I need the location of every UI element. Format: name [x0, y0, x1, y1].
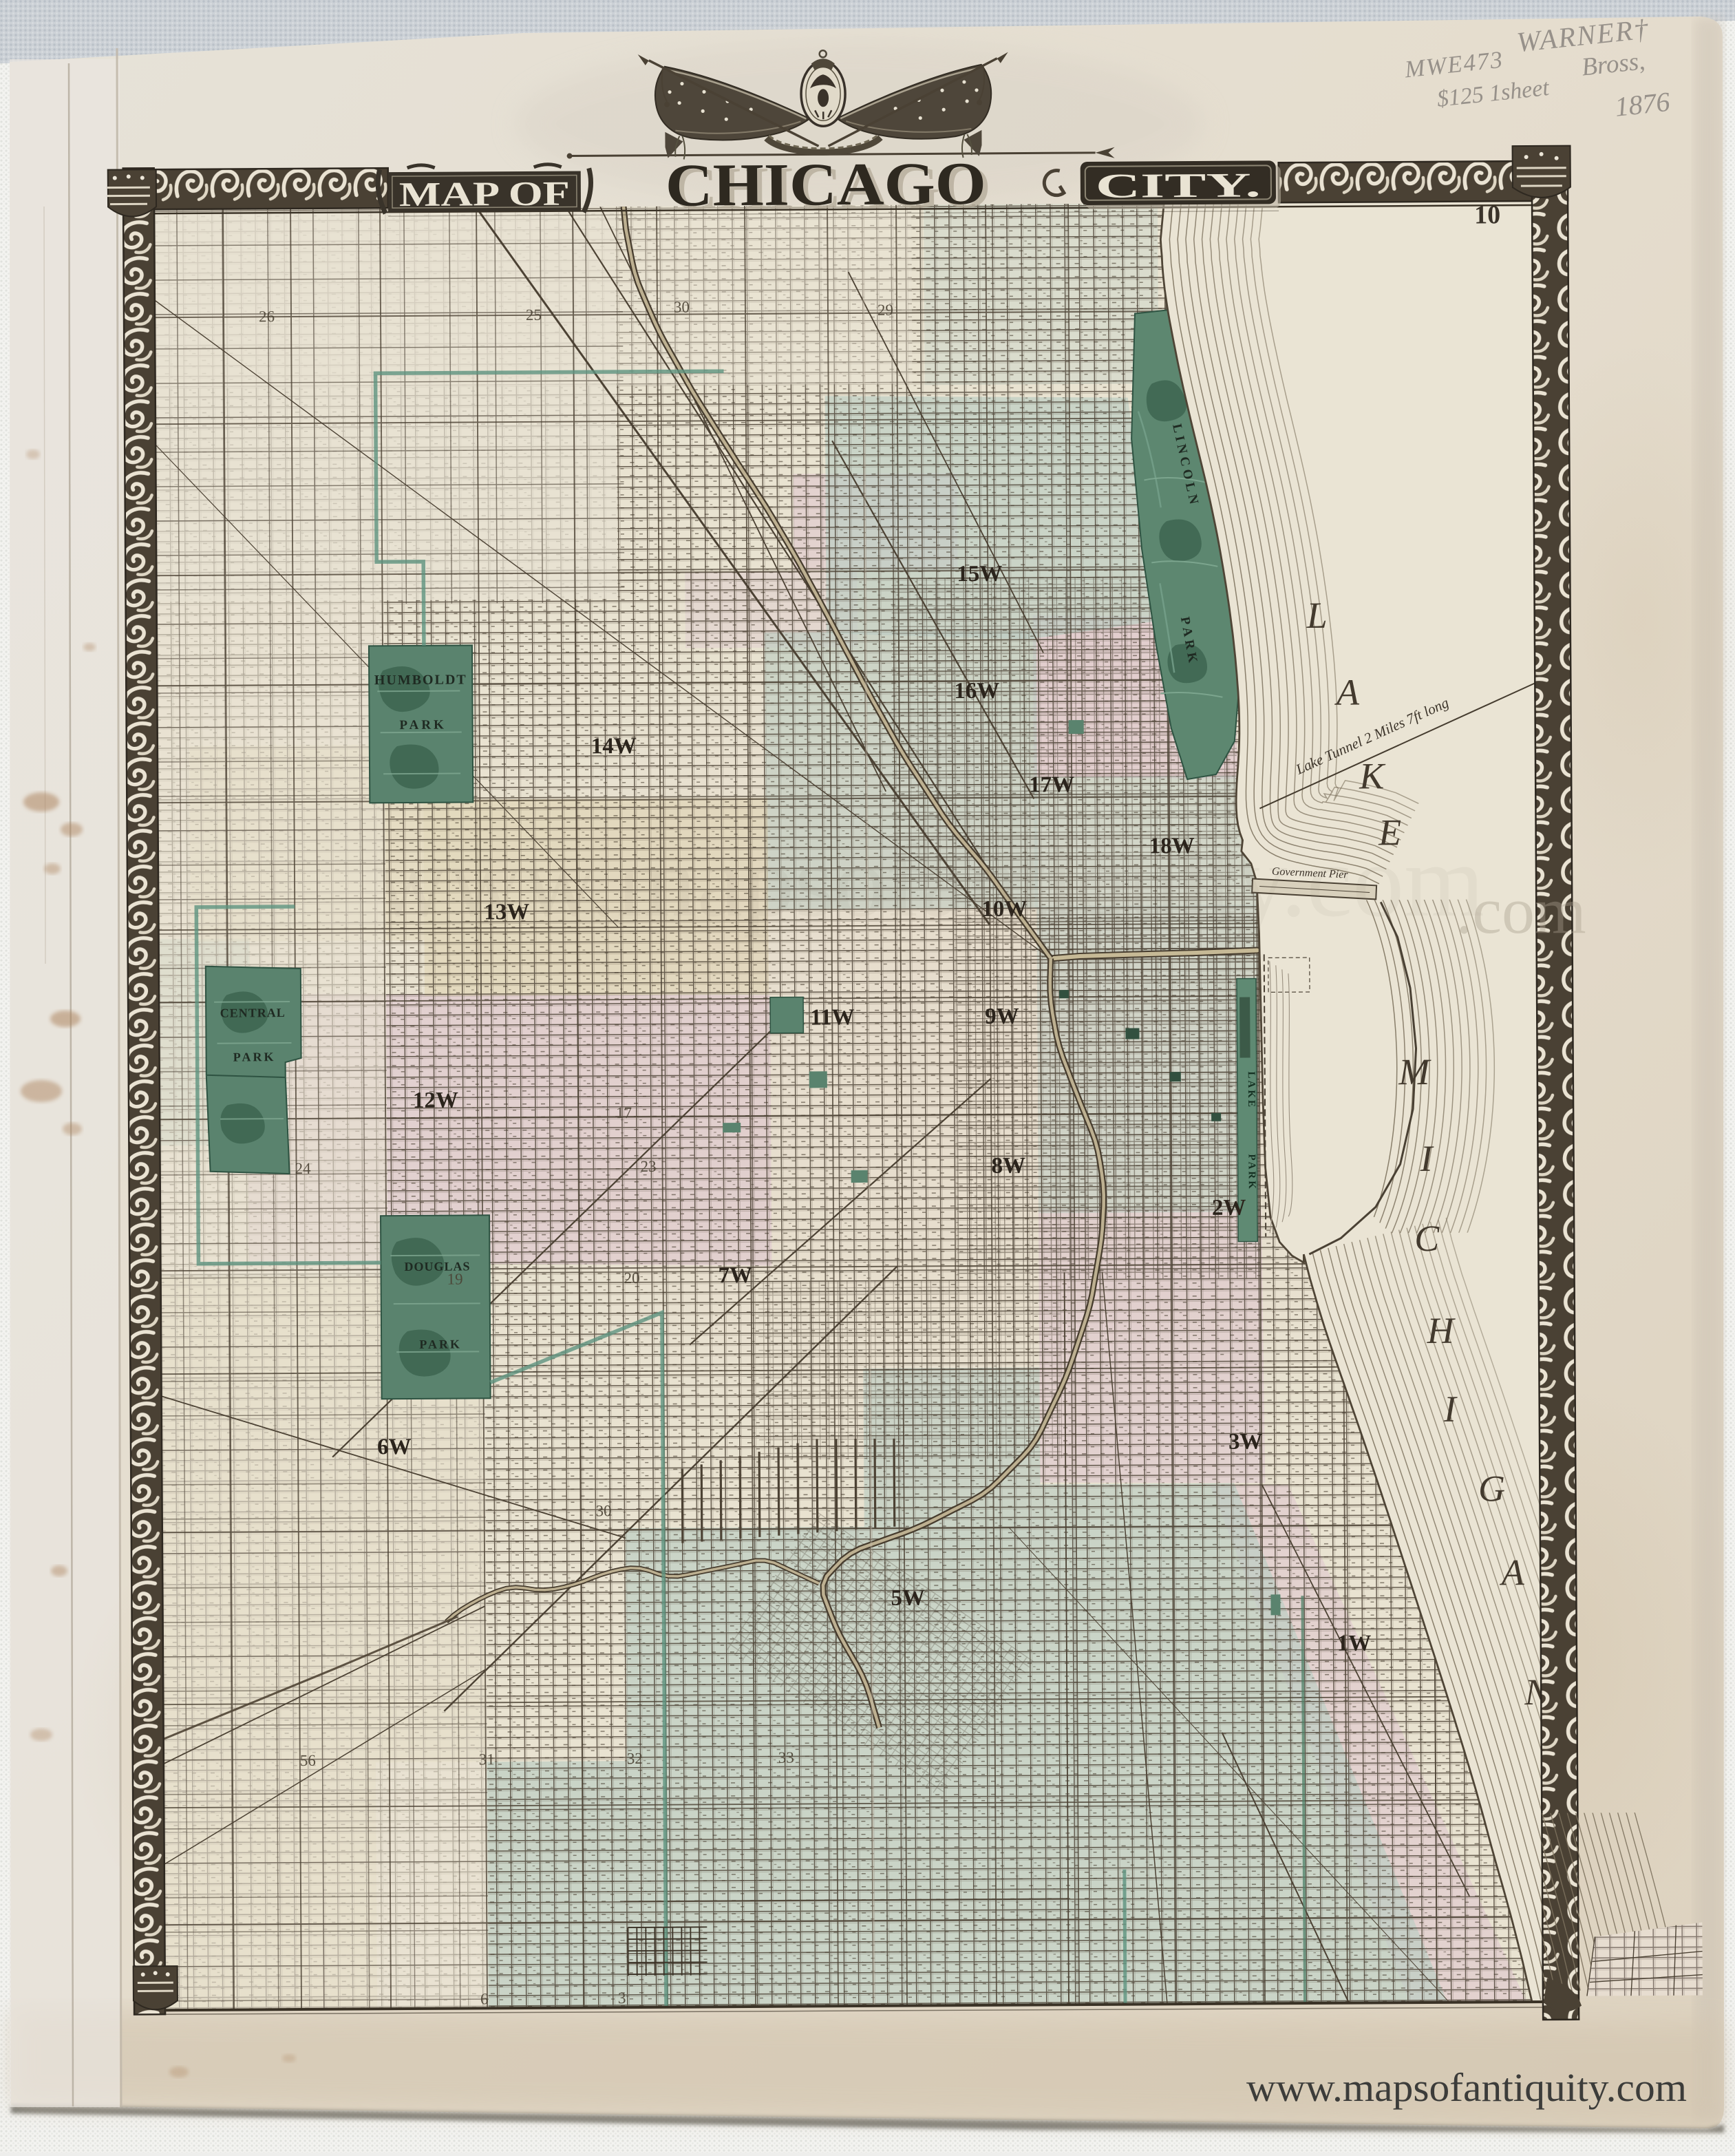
svg-text:32: 32	[627, 1750, 643, 1767]
svg-text:CITY.: CITY.	[1096, 165, 1261, 204]
svg-text:56: 56	[300, 1752, 316, 1769]
svg-text:3: 3	[618, 1989, 626, 2007]
svg-text:PARK: PARK	[233, 1050, 276, 1064]
svg-text:L: L	[1306, 595, 1327, 636]
svg-text:I: I	[1419, 1138, 1434, 1179]
svg-text:MAP OF: MAP OF	[399, 174, 570, 214]
svg-text:M: M	[1398, 1051, 1431, 1092]
svg-text:CENTRAL: CENTRAL	[220, 1006, 286, 1020]
svg-text:K: K	[1359, 755, 1386, 796]
svg-text:I: I	[1443, 1388, 1458, 1430]
svg-text:12W: 12W	[413, 1088, 458, 1113]
svg-text:www.mapsofantiquity.com: www.mapsofantiquity.com	[374, 824, 1484, 938]
svg-text:19: 19	[447, 1271, 462, 1288]
svg-text:17W: 17W	[1029, 772, 1074, 797]
svg-text:6W: 6W	[377, 1435, 412, 1459]
svg-text:PARK: PARK	[419, 1338, 462, 1351]
svg-text:.com: .com	[1456, 874, 1586, 947]
svg-text:LAKE: LAKE	[1246, 1071, 1257, 1109]
svg-text:7W: 7W	[718, 1263, 752, 1288]
svg-text:1876: 1876	[1613, 86, 1671, 123]
svg-text:C: C	[1414, 1218, 1440, 1259]
svg-text:20: 20	[624, 1269, 639, 1287]
svg-text:3W: 3W	[1228, 1429, 1263, 1454]
svg-text:33: 33	[778, 1749, 794, 1766]
svg-text:www.mapsofantiquity.com: www.mapsofantiquity.com	[1246, 2065, 1687, 2110]
svg-text:1W: 1W	[1337, 1631, 1372, 1656]
svg-text:G: G	[1478, 1468, 1505, 1509]
svg-text:5W: 5W	[891, 1585, 925, 1610]
svg-text:16W: 16W	[954, 679, 999, 704]
svg-text:17: 17	[616, 1104, 632, 1121]
svg-text:31: 31	[479, 1751, 495, 1768]
svg-text:2W: 2W	[1212, 1196, 1246, 1220]
svg-text:11W: 11W	[810, 1005, 854, 1030]
svg-text:CHICAGO: CHICAGO	[666, 151, 987, 220]
svg-text:10: 10	[1474, 200, 1500, 229]
svg-text:HUMBOLDT: HUMBOLDT	[374, 672, 467, 688]
svg-text:26: 26	[259, 308, 275, 325]
svg-text:A: A	[1334, 672, 1360, 713]
svg-text:14W: 14W	[591, 734, 637, 759]
svg-text:23: 23	[640, 1158, 656, 1175]
svg-text:30: 30	[674, 298, 690, 315]
svg-text:H: H	[1426, 1310, 1456, 1351]
svg-text:9W: 9W	[985, 1004, 1019, 1029]
svg-text:24: 24	[295, 1160, 312, 1177]
svg-text:15W: 15W	[957, 562, 1002, 586]
svg-text:29: 29	[877, 302, 893, 319]
svg-text:25: 25	[526, 306, 542, 324]
svg-text:8W: 8W	[991, 1154, 1025, 1179]
svg-text:A: A	[1500, 1552, 1525, 1593]
svg-text:6: 6	[480, 1990, 489, 2007]
svg-text:30: 30	[596, 1502, 612, 1519]
svg-text:PARK: PARK	[1246, 1154, 1257, 1190]
svg-text:PARK: PARK	[399, 718, 447, 732]
